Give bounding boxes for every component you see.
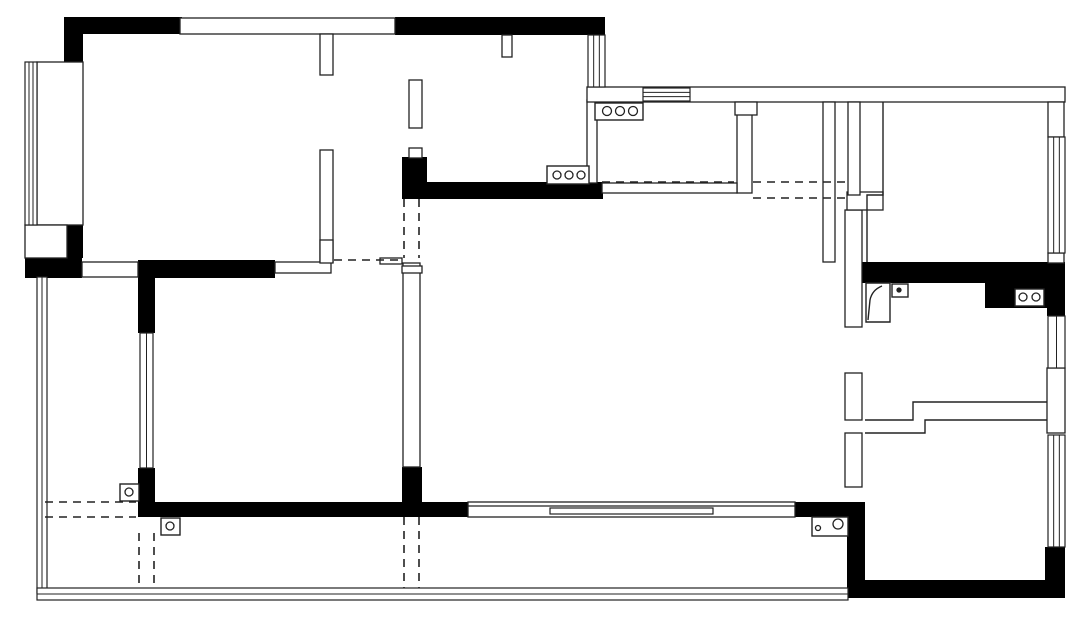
door-threshold-terrace bbox=[82, 262, 138, 277]
wall-piece-hall-a bbox=[380, 258, 402, 264]
counter-hob-symbol-circle bbox=[603, 107, 612, 116]
wall-jog-bedroom2-ne bbox=[320, 240, 333, 263]
wall-duct bbox=[848, 102, 860, 195]
bedroom4-closet-wall bbox=[867, 102, 883, 262]
bedroom3-north-step-wall bbox=[865, 420, 1047, 433]
kitchen-flue bbox=[502, 35, 512, 57]
wall-block-terrace-top bbox=[25, 258, 82, 278]
washer-symbol-circle bbox=[816, 526, 821, 531]
wall-stub-bay-bottom bbox=[65, 225, 83, 258]
wall-bedroom2-east bbox=[403, 263, 420, 467]
living-south-sliding-door-panel bbox=[550, 508, 713, 514]
bedroom3-east-window bbox=[1048, 435, 1065, 547]
bay-window-glazing bbox=[25, 62, 37, 225]
floor-drain-symbol-1-circle bbox=[125, 488, 133, 496]
bedroom4-east-window bbox=[1048, 137, 1065, 253]
basin-symbol-circle bbox=[1032, 293, 1040, 301]
floor-drain-symbol-2-circle bbox=[166, 522, 174, 530]
bath-south-step-wall bbox=[865, 402, 1047, 420]
wall-bedroom3-se bbox=[1045, 547, 1065, 598]
band-top-window-area bbox=[180, 18, 395, 34]
wall-bedroom3-south bbox=[847, 580, 1063, 598]
counter-hob-symbol-circle bbox=[616, 107, 625, 116]
wall-bedroom2-south bbox=[138, 502, 468, 517]
shower-door-leaf bbox=[868, 286, 882, 320]
low-wall-pantry-south bbox=[602, 183, 737, 193]
basin-symbol-circle bbox=[1019, 293, 1027, 301]
pantry-north-window bbox=[643, 88, 690, 101]
bay-window-seat bbox=[37, 62, 83, 225]
floor-plan-canvas bbox=[0, 0, 1080, 618]
wall-divider-bedrooms bbox=[138, 260, 275, 278]
wall-bedroom4-east-mid bbox=[1048, 253, 1064, 263]
washer-symbol-circle bbox=[833, 519, 843, 529]
wall-kitchen-west-b bbox=[409, 148, 422, 158]
wall-top-kitchen bbox=[395, 17, 605, 35]
wall-bedroom1-east-a bbox=[320, 34, 333, 75]
wall-bath-east-upper bbox=[1047, 283, 1065, 316]
wall-bath-east-block bbox=[1047, 368, 1065, 433]
wall-bath-north bbox=[847, 262, 1065, 283]
stove-symbol-circle bbox=[553, 171, 561, 179]
column-kitchen-sw bbox=[402, 157, 427, 199]
counter-hob-symbol-circle bbox=[629, 107, 638, 116]
stove-symbol-circle bbox=[565, 171, 573, 179]
floor-plan-page bbox=[0, 0, 1080, 618]
wall-piece-hall-b bbox=[402, 266, 422, 273]
wall-bedroom4-east-top bbox=[1048, 102, 1064, 137]
wall-bedroom2-west-upper bbox=[138, 262, 155, 333]
kitchen-east-window bbox=[588, 35, 605, 87]
junction-box-symbol-circle bbox=[897, 288, 901, 292]
wall-living-east-c bbox=[845, 433, 862, 487]
wall-top-bedroom1 bbox=[64, 17, 182, 34]
wall-pantry-east bbox=[737, 102, 752, 193]
wall-living-east-a bbox=[845, 210, 862, 327]
cabinet-niche bbox=[25, 225, 67, 258]
wall-kitchen-west-a bbox=[409, 80, 422, 128]
wall-living-east-b bbox=[845, 373, 862, 420]
pillar-step bbox=[735, 102, 757, 115]
stove-symbol-circle bbox=[577, 171, 585, 179]
